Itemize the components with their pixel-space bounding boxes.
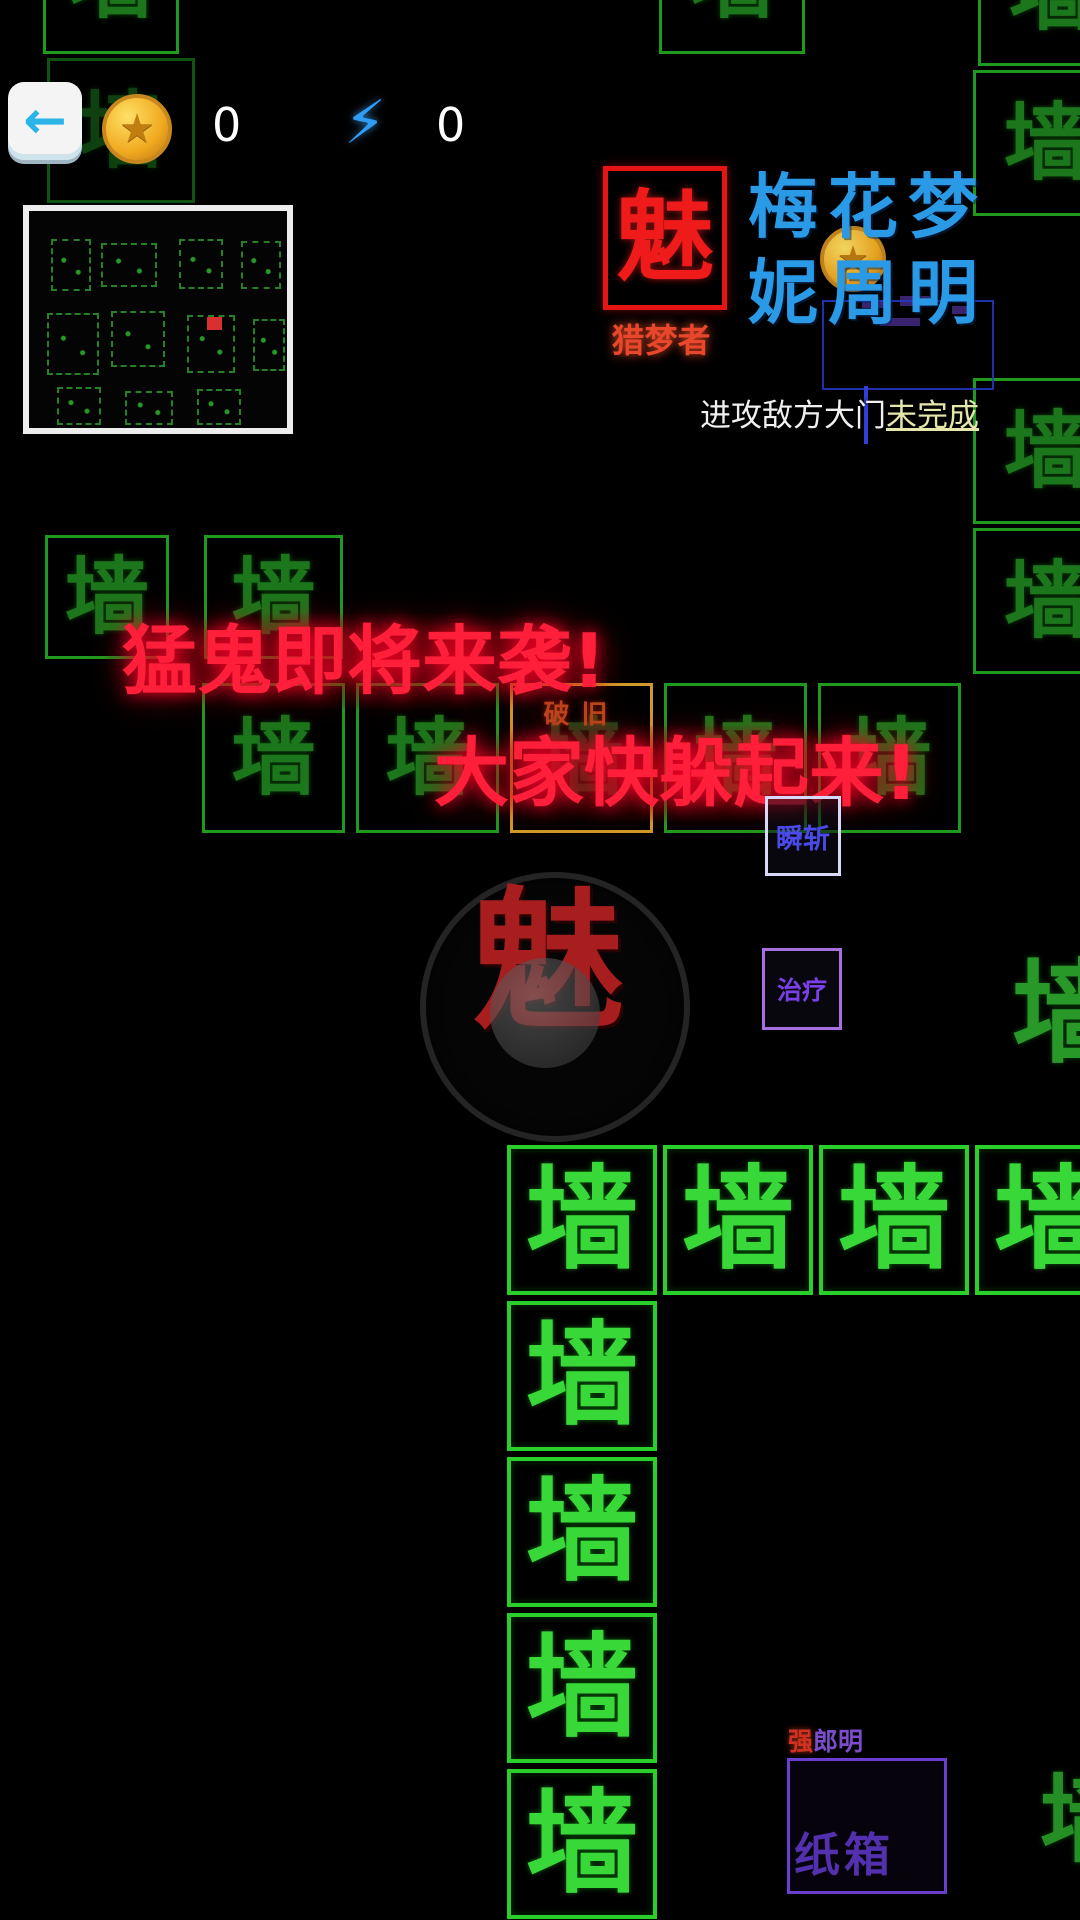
wall-tile: 墙 [975,1145,1080,1295]
coin-star-icon: ★ [119,106,155,152]
wall-glyph: 墙 [526,1788,638,1900]
wall-glyph: 墙 [526,1476,638,1588]
minimap-room [101,243,157,287]
wall-tile: 墙 [973,528,1080,674]
wall-glyph-fragment: 墙 [1040,1772,1080,1868]
minimap-room [197,389,241,425]
crate-owner-tags: 强郎明 [788,1722,863,1758]
cardboard-box: 纸箱 [787,1758,947,1894]
game-screen: 墙墙墙墙墙墙墙墙墙墙墙墙墙破旧墙墙墙墙墙墙墙墙墙墙墙 ← ★ 0 ⚡ 0 魅 猎… [0,0,1080,1920]
wall-glyph: 墙 [1004,409,1080,493]
wall-tile: 墙 [507,1613,657,1763]
wall-glyph: 墙 [838,1164,950,1276]
minimap-room [47,313,99,375]
wall-glyph: 墙 [526,1320,638,1432]
back-arrow-icon: ← [23,95,67,147]
minimap-enemy-marker-icon [207,317,222,330]
wall-glyph: 墙 [69,0,153,23]
joystick-knob[interactable] [490,958,600,1068]
skill-label: 治疗 [777,971,827,1007]
coin-icon: ★ [102,94,172,164]
minimap-room [241,241,281,289]
wall-tile: 墙 [43,0,179,54]
wall-tile: 墙 [507,1457,657,1607]
clan-logo-glyph: 魅 [616,189,714,287]
wall-tile: 墙 [507,1301,657,1451]
quest-text: 进攻敌方大门 [700,398,886,434]
wall-glyph: 墙 [690,0,774,23]
ghost-warning-line2: 大家快躲起来! [420,726,932,821]
wall-glyph: 墙 [1009,0,1080,35]
wall-glyph: 墙 [526,1164,638,1276]
skill-button-heal[interactable]: 治疗 [762,948,842,1030]
wall-glyph: 墙 [1004,559,1080,643]
minimap-room [51,239,91,291]
quest-status-line: 进攻敌方大门未完成 [700,390,979,435]
wall-tile: 墙 [507,1145,657,1295]
energy-bolt-icon: ⚡ [344,88,386,158]
crate-tag-red: 强 [788,1727,813,1756]
energy-count: 0 [436,98,465,152]
hunter-role-label: 猎梦者 [598,314,724,362]
minimap-room [57,387,101,425]
crate-tag-purple: 郎明 [813,1727,863,1756]
player-name-line1: 梅花梦 [748,172,988,242]
coin-count: 0 [212,98,241,152]
wall-glyph: 墙 [682,1164,794,1276]
minimap-room [179,239,223,289]
wall-tile: 墙 [663,1145,813,1295]
wall-tile: 墙 [659,0,805,54]
minimap-room [253,319,285,371]
minimap-room [111,311,165,367]
player-name-line2: 妮周明 [748,258,988,328]
clan-logo-box: 魅 [603,166,727,310]
wall-tile: 墙 [973,70,1080,216]
wall-tile: 墙 [507,1769,657,1919]
wall-glyph: 墙 [231,716,315,800]
wall-glyph-fragment: 墙 [1012,958,1080,1070]
wall-tile: 墙 [978,0,1080,66]
back-button[interactable]: ← [8,82,82,160]
wall-tile: 墙 [819,1145,969,1295]
minimap [23,205,293,434]
quest-status-badge: 未完成 [886,398,979,434]
minimap-room [125,391,173,425]
skill-button-flash-slash[interactable]: 瞬斩 [765,796,841,876]
skill-label: 瞬斩 [776,817,830,856]
cardboard-box-label: 纸箱 [794,1819,894,1885]
wall-tile: 墙 [973,378,1080,524]
wall-glyph: 墙 [526,1632,638,1744]
wall-glyph: 墙 [1004,101,1080,185]
ghost-warning-line1: 猛鬼即将来袭! [108,614,620,709]
wall-glyph: 墙 [994,1164,1080,1276]
